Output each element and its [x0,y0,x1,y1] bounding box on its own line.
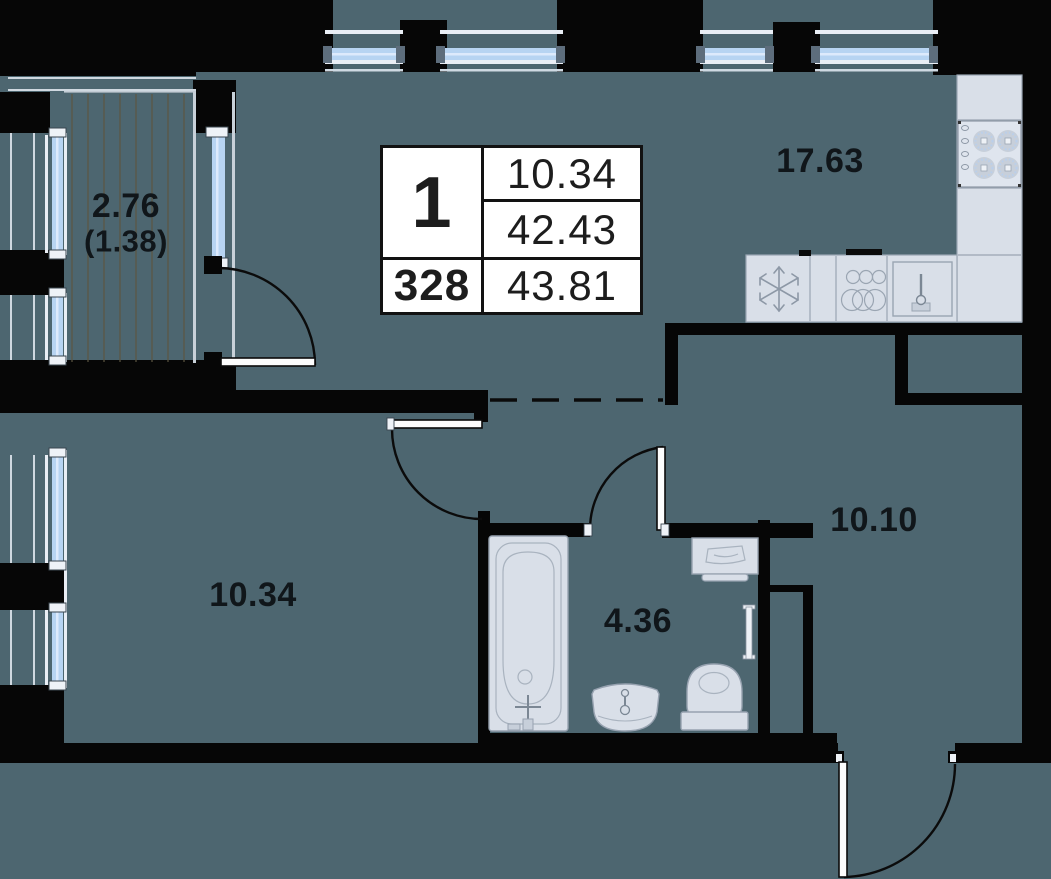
entrance-door [833,751,958,877]
bathroom-door [584,447,669,536]
kitchen-living-area-label: 17.63 [776,144,864,178]
plan-drawing [0,0,1051,879]
doors [204,256,958,877]
living-area-value: 10.34 [484,148,640,202]
bedroom-door [387,413,488,519]
counter-handle-icon [846,249,882,255]
toilet-icon [681,664,748,730]
unit-number: 328 [383,257,484,312]
floor-plan: 2.76 (1.38) 17.63 10.34 4.36 10.10 1 10.… [0,0,1051,879]
hob-burners-icon [958,121,1021,187]
towel-rail-icon [743,605,755,659]
window-balcony-lower [45,288,67,365]
apartment-info-table: 1 10.34 42.43 328 43.81 [380,145,643,315]
window-balcony-upper [45,128,67,259]
balcony-door [204,256,315,370]
area-without-balcony-value: 42.43 [484,202,640,257]
window-bedroom-lower [45,603,66,690]
balcony-coeff-label: (1.38) [84,226,168,257]
bedroom-area-label: 10.34 [209,578,297,612]
balcony-area-label: 2.76 [92,189,160,223]
bathtub-icon [489,536,568,731]
total-area-value: 43.81 [484,257,640,312]
window-top-4 [811,30,938,72]
counter-handle-icon [799,250,811,256]
bathroom-area-label: 4.36 [604,604,672,638]
rooms-count: 1 [383,148,484,257]
washbasin-icon [592,684,659,731]
window-top-3 [696,30,774,72]
hallway-area-label: 10.10 [830,503,918,537]
window-top-2 [436,30,565,72]
washer-icon [692,538,758,581]
window-top-1 [323,30,405,72]
